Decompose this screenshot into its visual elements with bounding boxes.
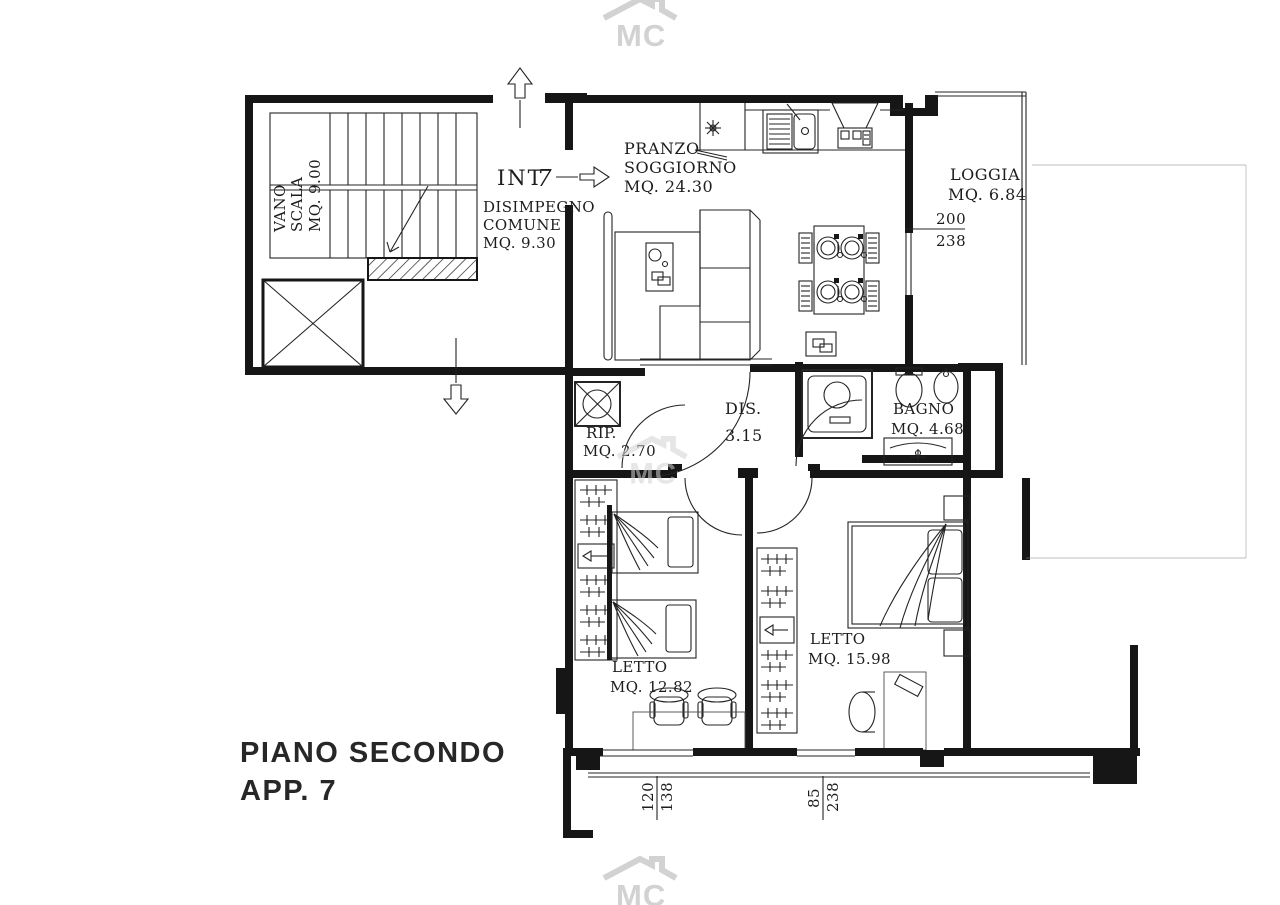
svg-text:238: 238: [824, 782, 842, 812]
stairs-up-arrow-icon: [508, 68, 532, 128]
coffee-table: [646, 243, 673, 291]
floor-plan-page: MC: [0, 0, 1280, 905]
svg-text:DISIMPEGNO: DISIMPEGNO: [483, 198, 595, 216]
desk-right-room: [849, 672, 926, 750]
single-bed-2: [611, 600, 696, 658]
wardrobe-right: [757, 548, 797, 733]
side-table: [806, 332, 836, 356]
elevator-shaft: [263, 280, 363, 367]
svg-text:SOGGIORNO: SOGGIORNO: [624, 158, 737, 177]
single-bed-1: [612, 512, 698, 573]
svg-text:VANO: VANO: [271, 184, 289, 233]
svg-text:MQ. 6.84: MQ. 6.84: [948, 185, 1027, 204]
svg-text:SCALA: SCALA: [288, 177, 306, 232]
double-bed: [848, 522, 968, 628]
svg-text:MQ. 4.68: MQ. 4.68: [891, 420, 964, 438]
svg-text:LETTO: LETTO: [810, 630, 866, 648]
dining-table: [799, 226, 879, 314]
bidet-icon: [934, 368, 958, 403]
dimension-loggia-door: 200 238: [905, 210, 966, 250]
svg-text:MQ. 9.30: MQ. 9.30: [483, 234, 556, 252]
kitchen-counter: [695, 103, 905, 160]
room-label-disimpegno-comune: DISIMPEGNO COMUNE MQ. 9.30: [483, 198, 595, 252]
svg-text:DIS.: DIS.: [725, 399, 762, 418]
door-arc-bagno: [796, 400, 862, 466]
floor-plan-canvas: MC: [0, 0, 1280, 905]
svg-text:APP. 7: APP. 7: [240, 775, 337, 807]
svg-text:LETTO: LETTO: [612, 658, 668, 676]
desk-left-room: [633, 688, 745, 750]
loggia: LOGGIA MQ. 6.84 200 238: [905, 92, 1027, 365]
entry-label: INT 7: [497, 166, 609, 192]
room-label-vano-scala: VANO SCALA MQ. 9.00: [271, 159, 324, 233]
dimension-window-right: 85 238: [805, 776, 842, 820]
ripostiglio: RIP. MQ. 2.70: [575, 382, 656, 460]
svg-text:120: 120: [639, 782, 657, 812]
svg-text:PIANO SECONDO: PIANO SECONDO: [240, 737, 506, 769]
svg-text:138: 138: [658, 782, 676, 812]
door-arc-letto2: [757, 478, 812, 533]
watermark-bottom: [604, 859, 676, 905]
water-heater-icon: [575, 382, 620, 426]
bedroom-left: LETTO MQ. 12.82: [575, 480, 745, 750]
stove-hood: [832, 103, 878, 148]
bagno: BAGNO MQ. 4.68: [802, 368, 964, 465]
kitchen-sink: [763, 104, 818, 153]
svg-text:MQ. 24.30: MQ. 24.30: [624, 177, 713, 196]
shower-box: [802, 370, 872, 438]
svg-text:3.15: 3.15: [725, 426, 763, 445]
svg-text:RIP.: RIP.: [586, 424, 617, 442]
svg-text:7: 7: [537, 166, 552, 192]
disimpegno: DIS. 3.15: [725, 399, 763, 445]
svg-text:COMUNE: COMUNE: [483, 216, 561, 234]
svg-text:PRANZO: PRANZO: [624, 139, 700, 158]
room-label-pranzo: PRANZO SOGGIORNO MQ. 24.30: [624, 139, 737, 196]
entry-door-leaf: [604, 212, 612, 360]
svg-text:85: 85: [805, 788, 823, 808]
svg-text:238: 238: [936, 232, 966, 250]
svg-text:LOGGIA: LOGGIA: [950, 165, 1020, 184]
entry-arrow-icon: [580, 167, 609, 187]
svg-text:MQ. 9.00: MQ. 9.00: [306, 159, 324, 232]
svg-text:MQ. 12.82: MQ. 12.82: [610, 678, 693, 696]
living-furniture: [615, 210, 879, 360]
svg-text:BAGNO: BAGNO: [893, 400, 954, 418]
plan-title: PIANO SECONDO APP. 7: [240, 737, 506, 807]
watermark-top: [604, 0, 676, 53]
svg-text:200: 200: [936, 210, 966, 228]
hob-icon: [705, 120, 721, 136]
adjacent-unit-outline: [1026, 165, 1246, 558]
svg-text:MQ. 15.98: MQ. 15.98: [808, 650, 891, 668]
bedroom-right: LETTO MQ. 15.98: [757, 496, 970, 750]
stair-section-hatch: [368, 258, 477, 280]
rug: [615, 232, 700, 360]
stairs-down-arrow-icon: [444, 338, 468, 414]
dimension-window-left: 120 138: [639, 776, 676, 820]
